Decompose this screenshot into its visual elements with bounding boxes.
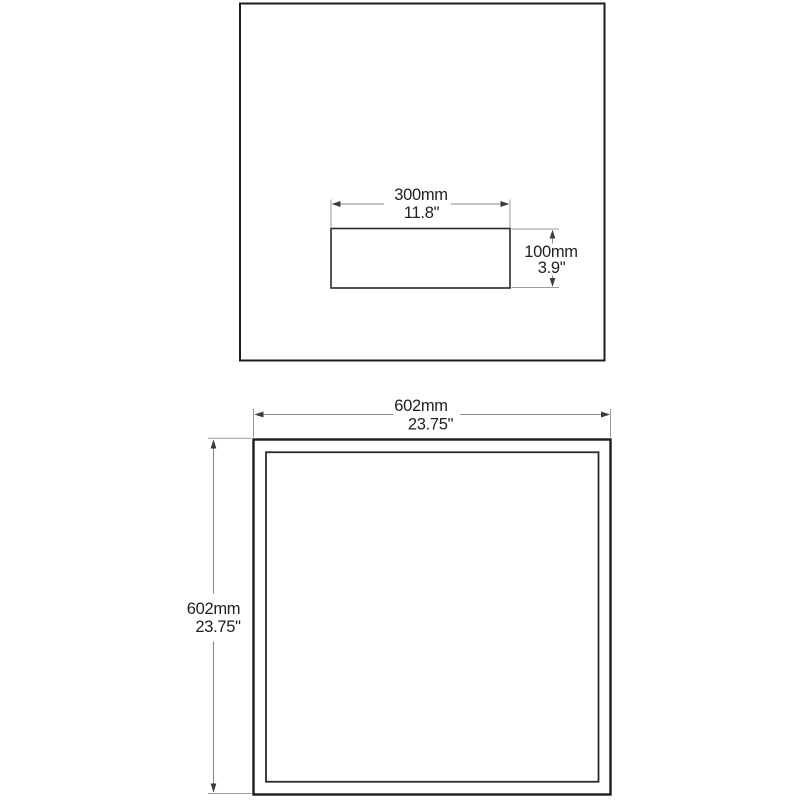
- front-view-height-inch-label: 23.75": [195, 618, 241, 636]
- arrowhead-left: [254, 412, 263, 418]
- arrowhead-down: [211, 784, 217, 793]
- front-view-panel-outline: [254, 440, 611, 795]
- top-view-width-inch-label: 11.8": [404, 204, 440, 222]
- top-view-height-inch-label: 3.9": [538, 259, 566, 277]
- top-view: 300mm 11.8" 100mm 3.9": [240, 4, 605, 361]
- front-view-width-inch-label: 23.75": [408, 416, 454, 434]
- front-view-height-mm-label: 602mm: [187, 600, 241, 618]
- drawing-canvas: 300mm 11.8" 100mm 3.9": [0, 0, 800, 800]
- front-view-height-dimension: 602mm 23.75": [187, 438, 252, 793]
- arrowhead-up: [211, 439, 217, 448]
- dimension-drawing: 300mm 11.8" 100mm 3.9": [0, 0, 800, 800]
- front-view-width-mm-label: 602mm: [394, 397, 448, 415]
- arrowhead-right: [601, 412, 610, 418]
- top-view-width-mm-label: 300mm: [394, 186, 448, 204]
- front-view-width-dimension: 602mm 23.75": [254, 397, 611, 438]
- front-view: 602mm 23.75" 602mm 23.75": [187, 397, 611, 795]
- top-view-panel-outline: [240, 4, 605, 361]
